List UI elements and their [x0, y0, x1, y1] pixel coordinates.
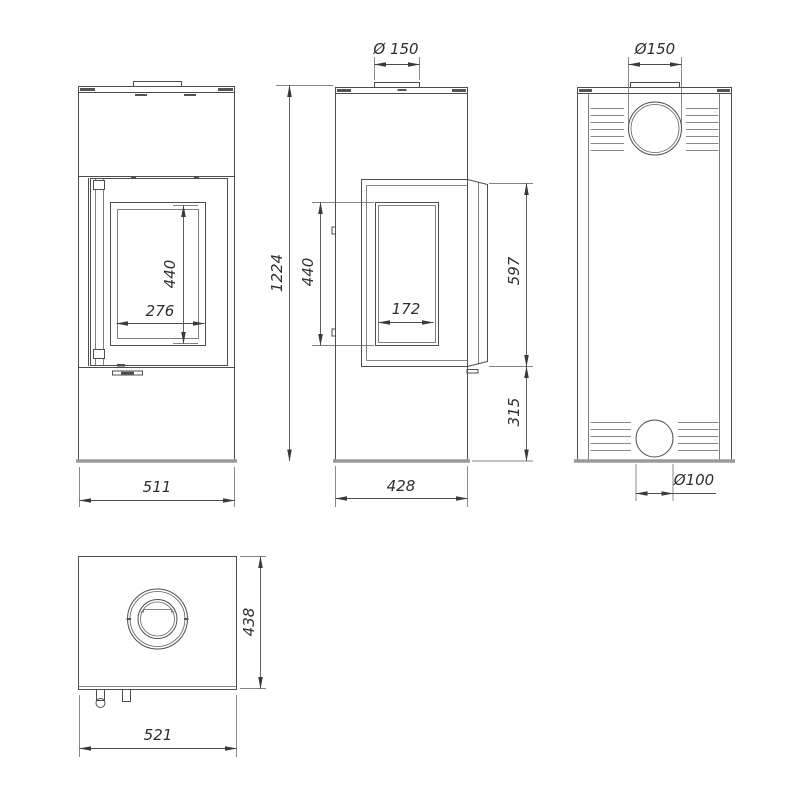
side-depth-label: 428 — [387, 477, 416, 495]
front-hinge-top — [94, 181, 105, 190]
top-leg-b — [123, 690, 131, 702]
drawing-canvas: 440 276 511 Ø 150 1 — [0, 0, 800, 800]
front-width-label: 511 — [143, 478, 172, 496]
side-height-label: 1224 — [268, 254, 286, 292]
side-hinge-bump-bottom — [332, 329, 336, 336]
front-door-handle-grip — [121, 372, 134, 375]
side-hinge-bump-top — [332, 227, 336, 234]
side-glass-outer — [376, 203, 439, 346]
technical-drawing: 440 276 511 Ø 150 1 — [0, 0, 800, 800]
back-inlet-label: Ø100 — [673, 471, 714, 489]
side-glass-width-label: 172 — [392, 300, 421, 318]
top-depth-label: 438 — [240, 608, 258, 637]
front-flue-tab — [134, 82, 182, 87]
back-air-inlet-hole — [636, 420, 673, 457]
top-leg-a-foot — [96, 699, 105, 708]
side-flue-collar — [375, 83, 420, 88]
top-body-outline — [79, 557, 237, 690]
side-door-height-label: 597 — [505, 256, 523, 285]
side-glass-height-label: 440 — [299, 258, 317, 287]
front-glass-outer — [111, 203, 206, 346]
top-view: 438 521 — [79, 557, 267, 758]
top-flue-ring-inner2 — [141, 602, 175, 636]
front-door-mark2 — [194, 177, 199, 180]
front-door-frame — [91, 179, 228, 366]
back-vents-top-right — [686, 109, 719, 151]
back-flue-hole-inner — [631, 105, 679, 153]
side-door-protrusion — [468, 180, 488, 367]
side-glass-inner — [379, 206, 436, 343]
front-door-mark3 — [117, 364, 125, 367]
side-flue-label: Ø 150 — [372, 40, 418, 58]
front-hinge-bottom — [94, 350, 105, 359]
back-view: Ø150 Ø100 — [574, 40, 735, 501]
front-body-outline — [79, 87, 235, 461]
side-body-outline — [336, 88, 468, 461]
top-width-label: 521 — [144, 726, 173, 744]
back-vents-top-left — [591, 109, 625, 151]
front-door-mark — [131, 177, 136, 180]
front-glass-height-label: 440 — [161, 260, 179, 289]
side-plinth-label: 315 — [505, 398, 523, 427]
back-flue-label: Ø150 — [634, 40, 675, 58]
back-vents-bottom-right — [678, 423, 719, 451]
front-view: 440 276 511 — [76, 82, 237, 508]
front-glass-width-label: 276 — [146, 302, 175, 320]
top-flue-baffle-chord — [141, 610, 175, 613]
back-vents-bottom-left — [591, 423, 632, 451]
back-flue-hole — [629, 102, 682, 155]
top-flue-ring-outer — [128, 589, 188, 649]
side-handle-mark — [467, 370, 478, 374]
side-view: Ø 150 1224 440 172 597 315 428 — [268, 40, 533, 507]
top-flue-ring-inner — [138, 600, 177, 639]
back-flue-tab — [631, 83, 680, 88]
